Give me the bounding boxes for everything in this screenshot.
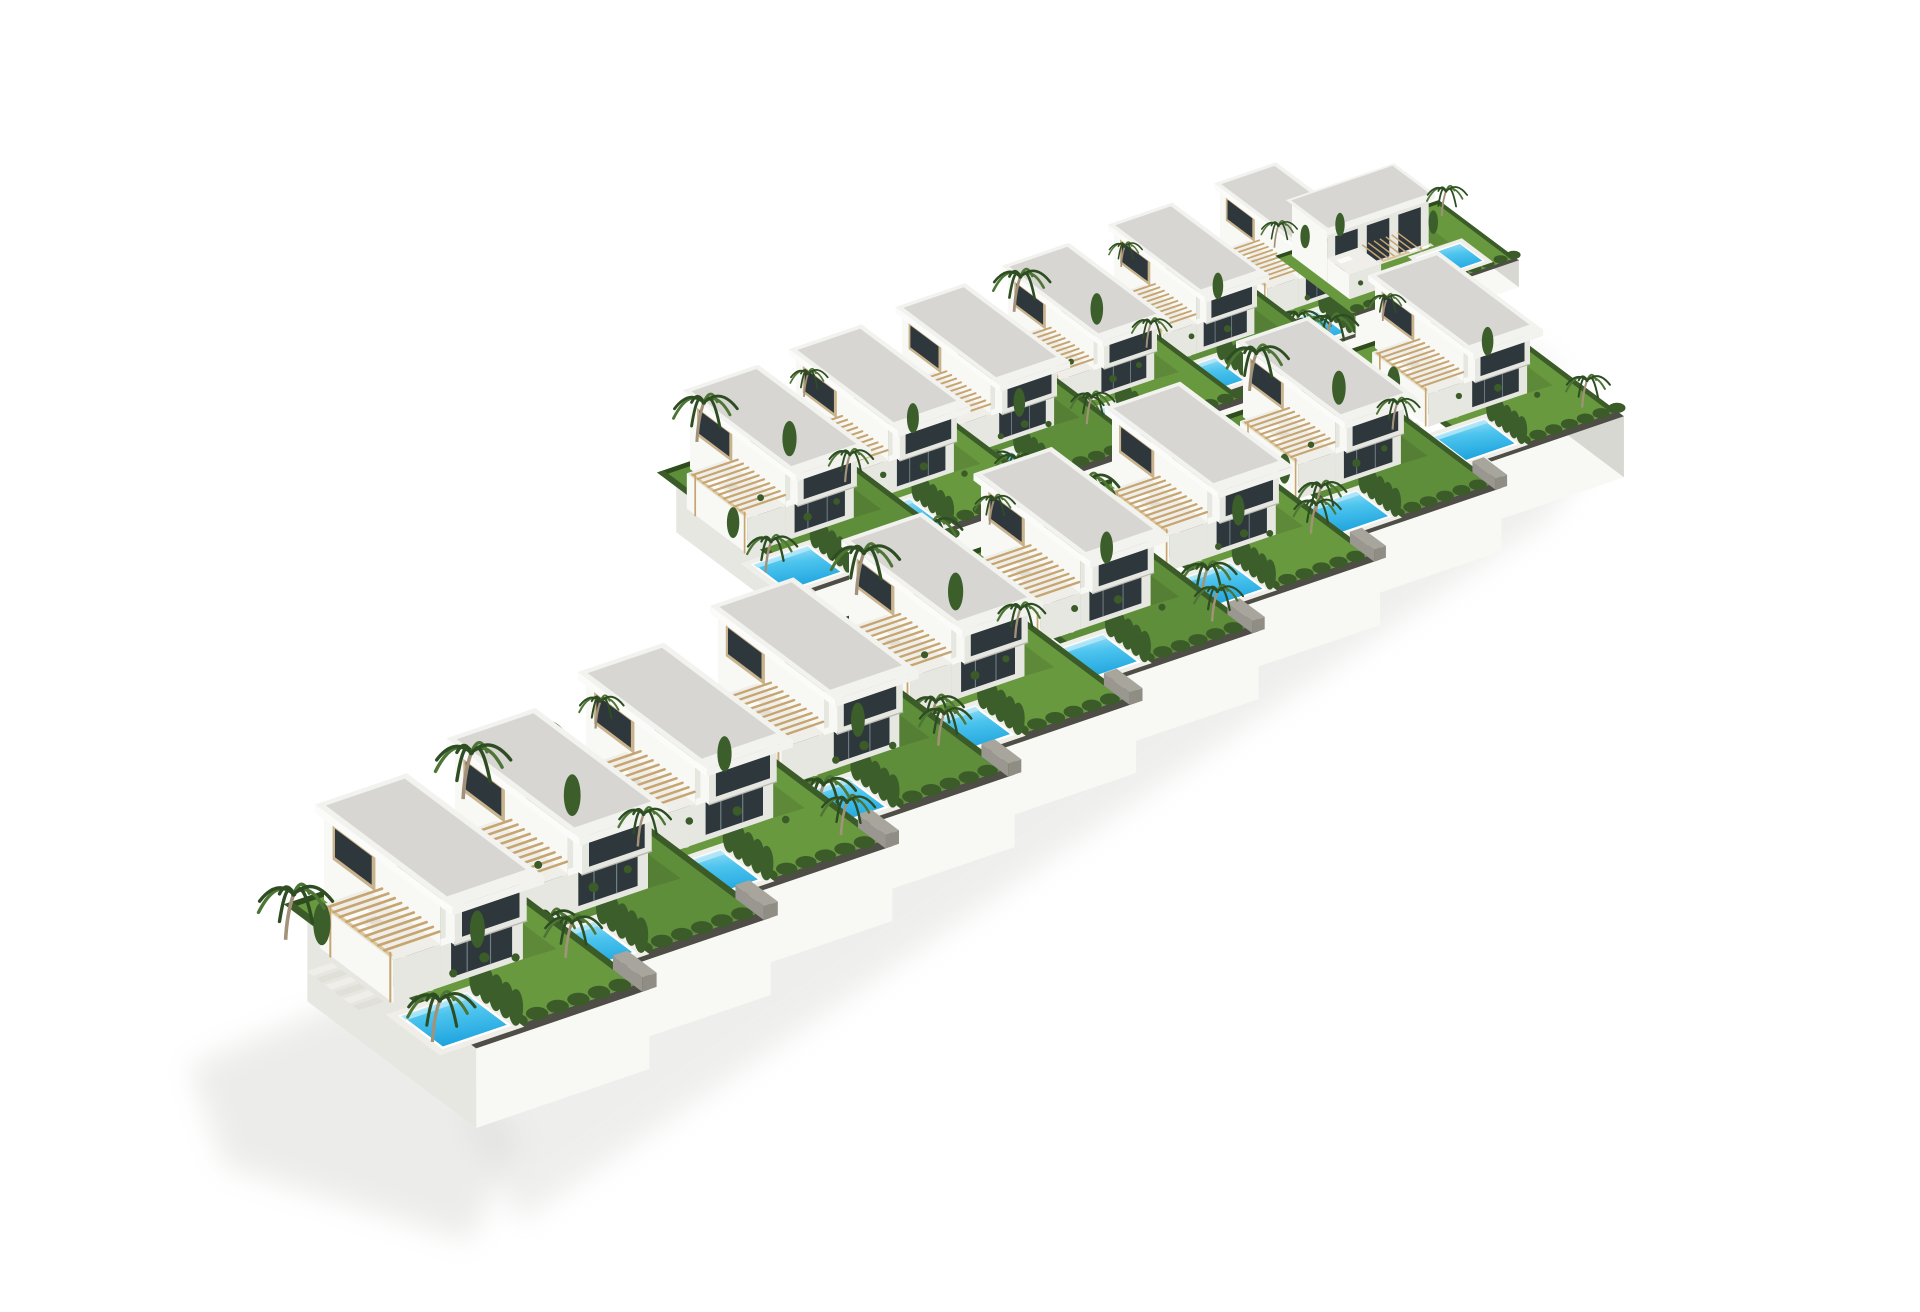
- garden-bush: [880, 472, 886, 478]
- cypress-tree: [509, 989, 524, 1026]
- cypress-tree: [634, 917, 648, 953]
- garden-bush: [920, 462, 928, 470]
- garden-bush: [1159, 604, 1166, 611]
- garden-bush: [1109, 375, 1117, 383]
- cypress-tree: [1138, 631, 1151, 662]
- garden-bush: [1381, 445, 1387, 451]
- garden-bush: [757, 494, 764, 501]
- garden-bush: [1002, 655, 1009, 662]
- garden-bush: [1215, 543, 1222, 550]
- cypress-tree: [1300, 225, 1309, 249]
- cypress-tree: [1264, 559, 1276, 589]
- garden-bush: [1045, 421, 1051, 427]
- cypress-tree: [886, 774, 899, 807]
- cypress-tree: [1012, 703, 1025, 735]
- garden-bush: [686, 817, 694, 825]
- garden-bush: [1136, 362, 1142, 368]
- garden-bush: [1534, 392, 1540, 398]
- garden-bush: [1358, 280, 1363, 285]
- garden-bush: [589, 882, 599, 892]
- cypress-tree: [782, 421, 796, 456]
- garden-bush: [1352, 459, 1360, 467]
- garden-bush: [1305, 295, 1311, 301]
- garden-bush: [1494, 384, 1502, 392]
- garden-bush: [1240, 529, 1248, 537]
- cypress-tree: [1213, 273, 1224, 300]
- cypress-tree: [1335, 213, 1344, 237]
- cypress-tree: [1390, 488, 1402, 517]
- garden-bush: [1021, 420, 1029, 428]
- cypress-tree: [1100, 532, 1113, 564]
- garden-bush: [479, 952, 489, 962]
- garden-bush: [449, 969, 457, 977]
- garden-bush: [921, 651, 928, 658]
- window-glass: [1398, 207, 1421, 253]
- garden-bush: [889, 742, 896, 749]
- garden-bush: [833, 498, 840, 505]
- cypress-tree: [760, 846, 774, 881]
- villa-development-scene: [40, 16, 1920, 1296]
- garden-bush: [803, 513, 811, 521]
- cypress-tree: [1429, 210, 1438, 234]
- garden-bush: [859, 741, 868, 750]
- cypress-tree: [851, 703, 865, 737]
- garden-bush: [971, 671, 980, 680]
- cypress-tree: [1482, 327, 1494, 356]
- garden-bush: [1071, 605, 1078, 612]
- garden-bush: [1189, 333, 1195, 339]
- garden-bush: [961, 470, 967, 476]
- cypress-tree: [1232, 495, 1244, 526]
- garden-bush: [1224, 325, 1231, 332]
- cypress-tree: [727, 507, 739, 538]
- garden-bush: [1456, 393, 1462, 399]
- garden-bush: [512, 953, 520, 961]
- architectural-render: Aerial 3D architectural rendering of a t…: [40, 16, 1920, 1296]
- garden-bush: [782, 816, 790, 824]
- garden-bush: [624, 865, 632, 873]
- garden-bush: [534, 861, 542, 869]
- cypress-tree: [1332, 371, 1346, 405]
- garden-bush: [1114, 595, 1123, 604]
- cypress-tree: [907, 403, 919, 433]
- villa-development: [259, 162, 1626, 1128]
- garden-bush: [1308, 442, 1314, 448]
- cypress-tree: [470, 910, 485, 948]
- cypress-tree: [1091, 293, 1104, 325]
- cypress-tree: [1014, 388, 1026, 417]
- cypress-tree: [948, 573, 963, 611]
- garden-bush: [1266, 530, 1273, 537]
- garden-bush: [832, 756, 839, 763]
- cypress-tree: [717, 736, 731, 771]
- cypress-tree: [1516, 416, 1527, 444]
- cypress-tree: [313, 902, 330, 945]
- cypress-tree: [564, 774, 581, 816]
- garden-bush: [733, 806, 743, 816]
- garden-bush: [998, 433, 1004, 439]
